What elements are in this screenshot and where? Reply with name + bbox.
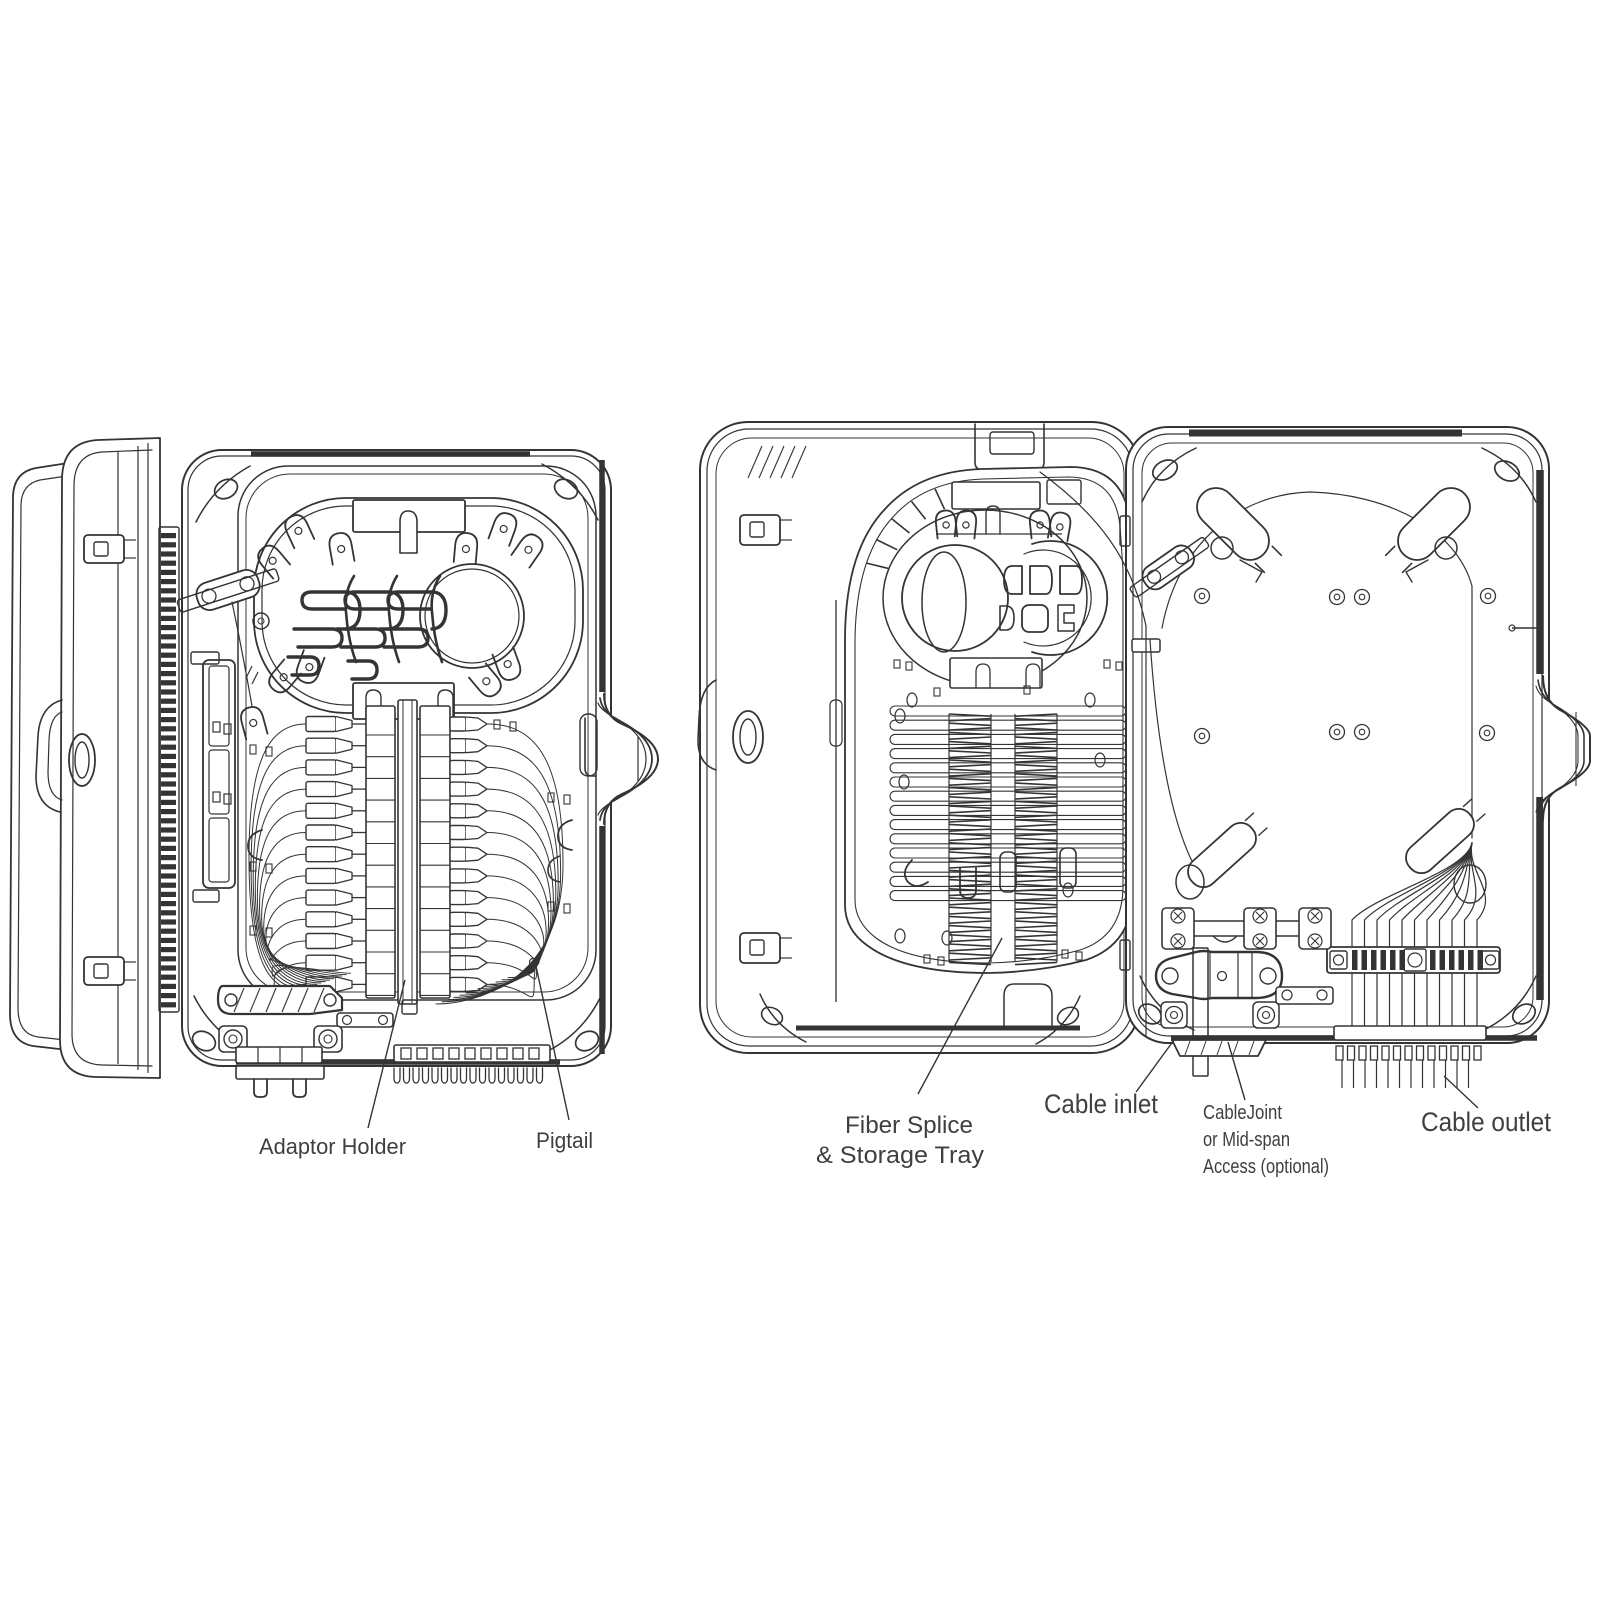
svg-text:Access (optional): Access (optional) — [1203, 1156, 1329, 1178]
svg-text:Adaptor Holder: Adaptor Holder — [259, 1134, 406, 1159]
svg-text:CableJoint: CableJoint — [1203, 1102, 1282, 1124]
svg-text:Cable inlet: Cable inlet — [1044, 1089, 1158, 1119]
svg-text:Fiber Splice: Fiber Splice — [845, 1112, 973, 1139]
svg-text:Pigtail: Pigtail — [536, 1128, 593, 1153]
svg-text:& Storage Tray: & Storage Tray — [816, 1142, 984, 1169]
svg-text:Cable outlet: Cable outlet — [1421, 1107, 1551, 1137]
svg-text:or Mid-span: or Mid-span — [1203, 1129, 1290, 1151]
